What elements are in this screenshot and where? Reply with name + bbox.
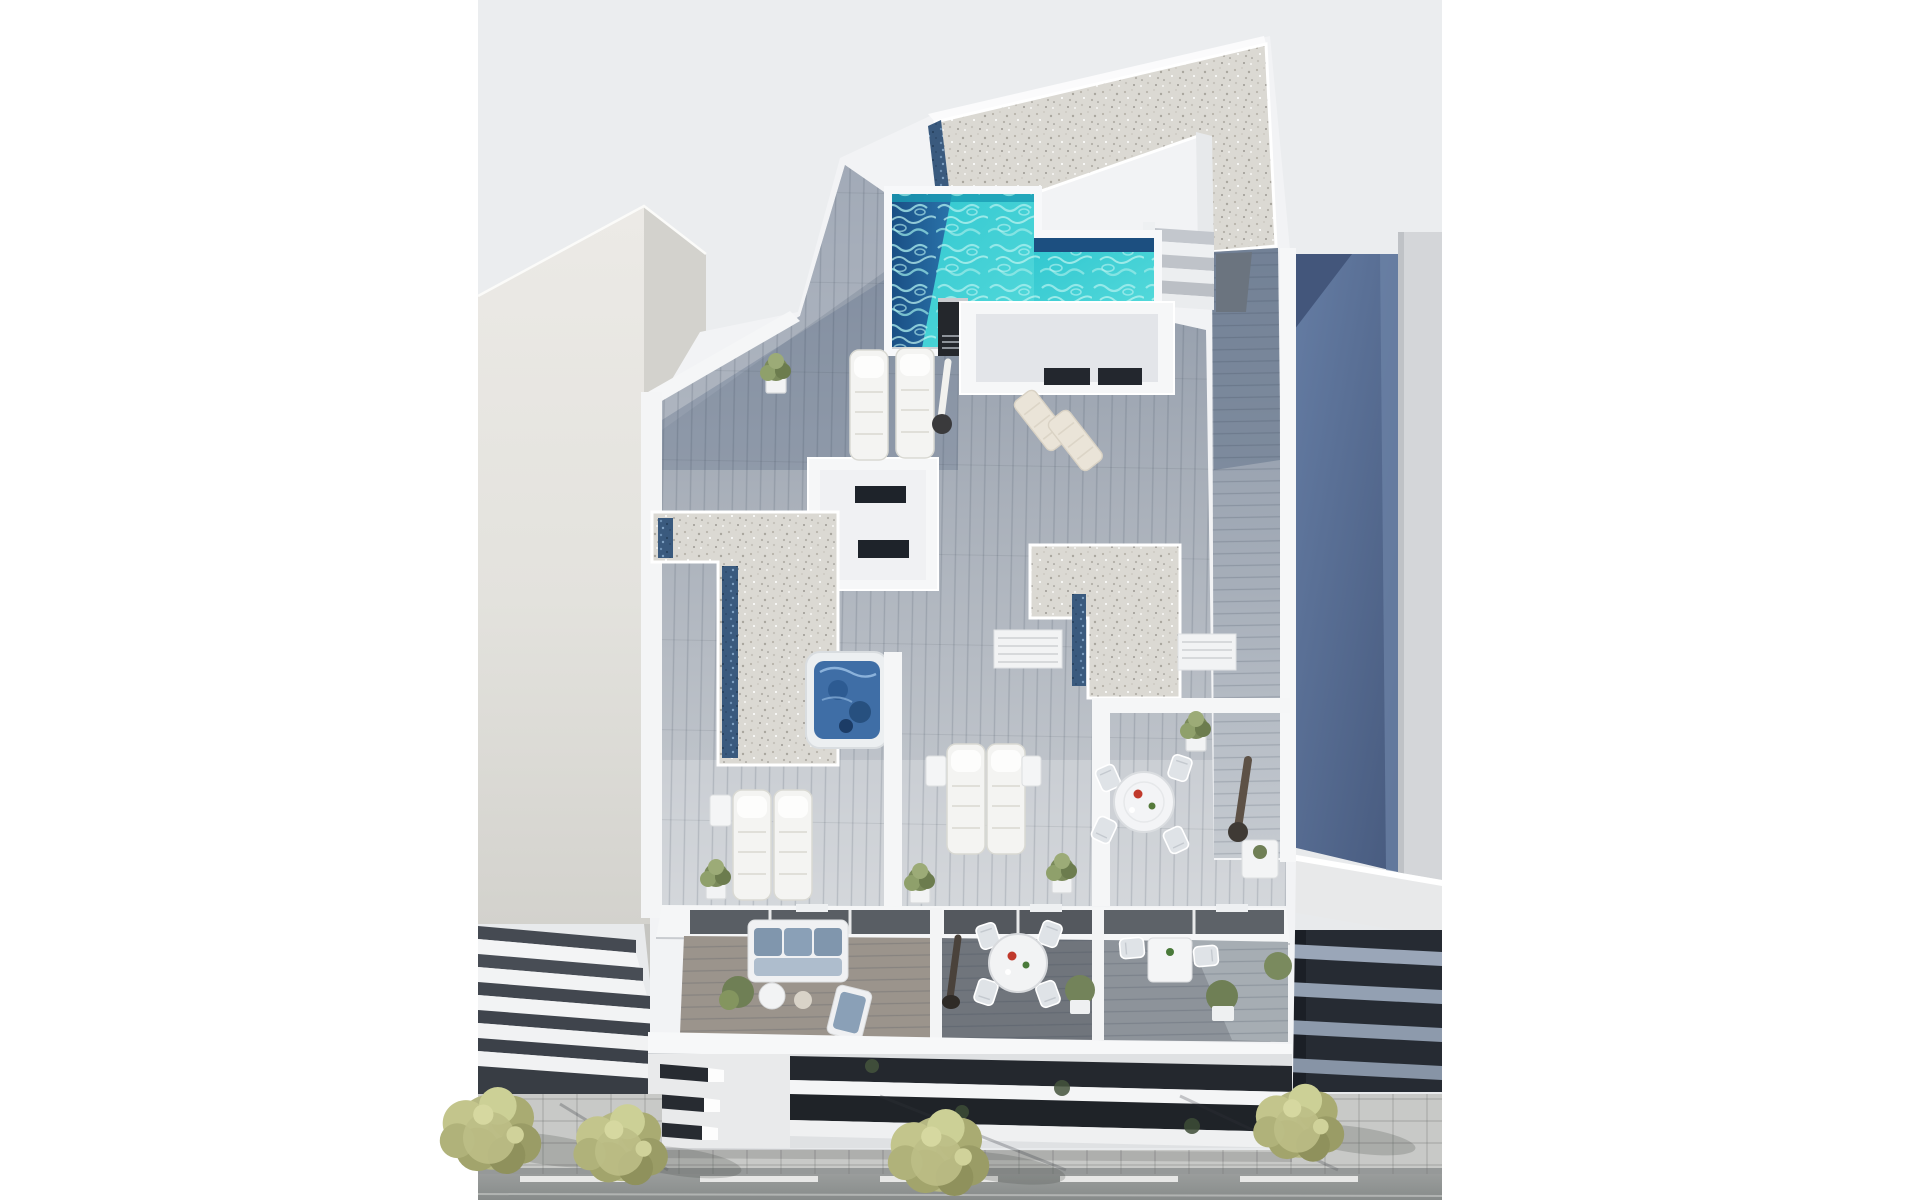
bulkhead-window-slot [1044, 368, 1090, 385]
louvre-door-left [994, 630, 1062, 668]
room-window-slot [855, 486, 906, 503]
terrace-back-wall [1092, 698, 1290, 713]
terrace-partition-wall [884, 652, 902, 906]
balcony-partition [1092, 910, 1104, 1040]
architectural-render [0, 0, 1920, 1200]
wall-light [1030, 904, 1062, 912]
wall-light [1216, 904, 1248, 912]
table-decor [1134, 790, 1143, 799]
walkway-parapet [1280, 248, 1296, 862]
bulkhead-window-slot [1098, 368, 1142, 385]
jacuzzi [806, 652, 888, 748]
parapet-left-vertical [641, 392, 662, 918]
facade-plant-hint [865, 1059, 879, 1073]
right-neighbor-wall-edge [1398, 232, 1404, 932]
facade-plant-hint [1184, 1118, 1200, 1134]
skylight-strip [658, 518, 673, 558]
side-table [926, 756, 946, 786]
render-stage [0, 0, 1920, 1200]
walkway-doorway-shadow [1216, 252, 1252, 312]
parasol-base [1228, 822, 1248, 842]
skylight-strip [1072, 594, 1086, 686]
stair-bulkhead-room [960, 302, 1174, 394]
balcony-plant [1264, 952, 1292, 980]
left-neighbor-wall-light [478, 206, 644, 924]
side-table [710, 795, 731, 826]
parasol-base [942, 995, 960, 1009]
side-table [1022, 756, 1041, 786]
coffee-table [759, 983, 785, 1009]
coffee-table [794, 991, 812, 1009]
skylight-strip [722, 566, 738, 758]
pool-arm-shadow [1034, 238, 1154, 252]
right-neighbor-sunlit-wall [1398, 232, 1442, 932]
room-window-slot [858, 540, 909, 558]
balcony-partition [930, 908, 942, 1038]
parasol-base [932, 414, 952, 434]
facade-plant-hint [1054, 1080, 1070, 1096]
louvre-door-right [1178, 634, 1236, 670]
terrace-partition-wall [1092, 698, 1110, 906]
table-decor [1149, 803, 1156, 810]
wall-light [796, 904, 828, 912]
